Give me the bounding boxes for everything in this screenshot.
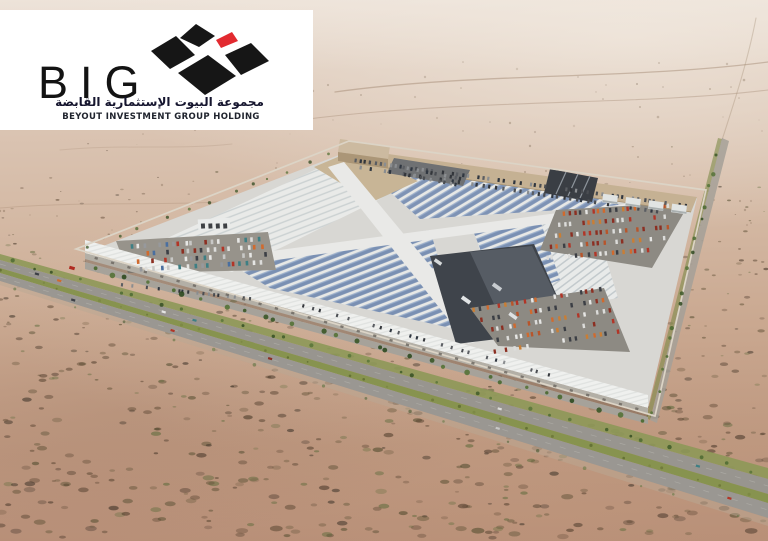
diamond-bottom [178, 55, 236, 95]
screenshot-canvas: BIG مجموعة البيوت الإستثمارية القابضة BE… [0, 0, 768, 541]
diamond-right [225, 43, 269, 75]
diamond-top [180, 24, 215, 47]
company-logo-card: BIG مجموعة البيوت الإستثمارية القابضة BE… [0, 10, 313, 130]
company-name-english: BEYOUT INVESTMENT GROUP HOLDING [58, 112, 264, 122]
company-name-arabic: مجموعة البيوت الإستثمارية القابضة [58, 96, 264, 109]
diamond-red [216, 32, 238, 48]
logo-diamonds-icon [148, 23, 273, 101]
